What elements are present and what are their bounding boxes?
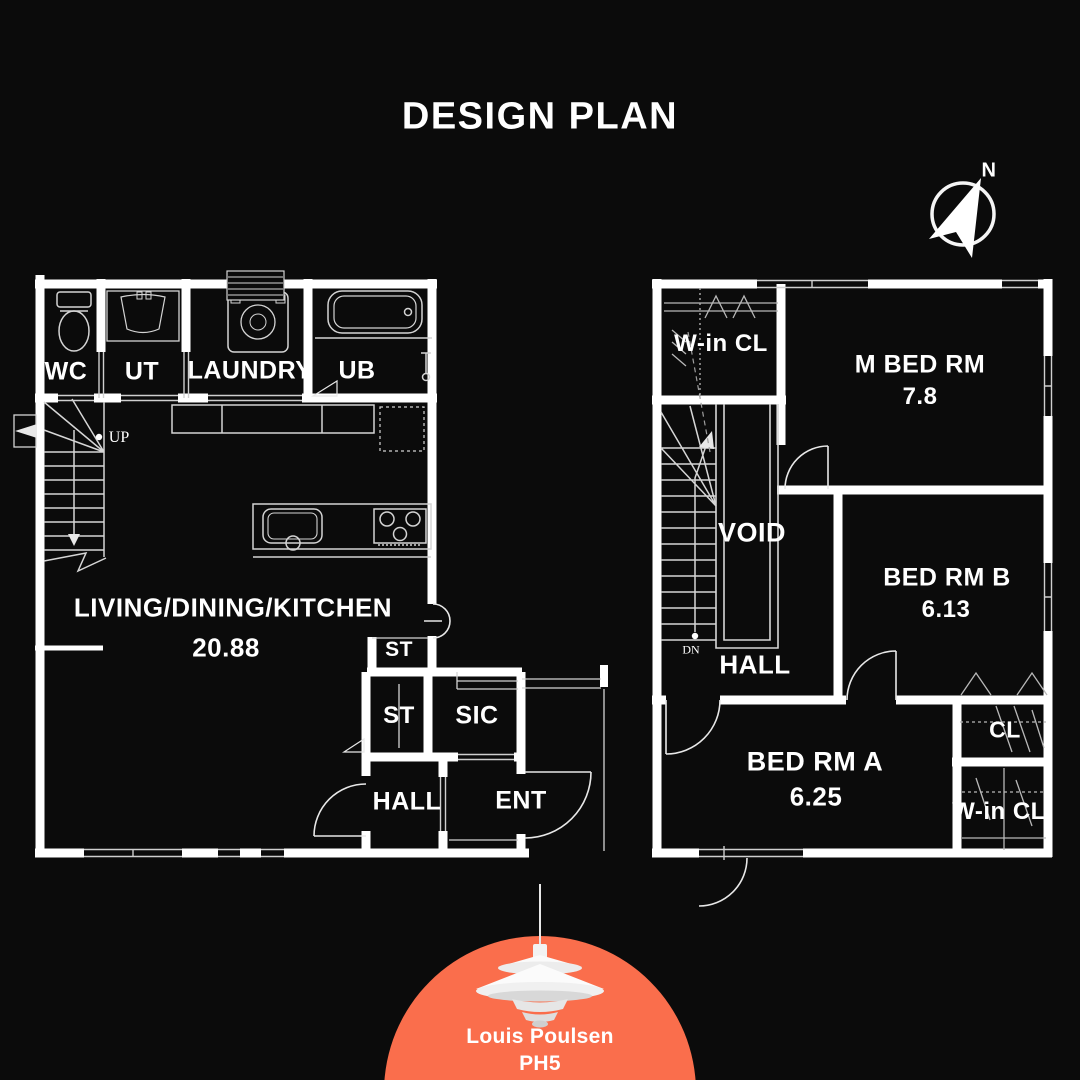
stairs-floor2 bbox=[661, 332, 716, 640]
room-label-hall2: HALL bbox=[719, 650, 790, 681]
kitchen-island-icon bbox=[253, 504, 431, 557]
room-area-ldk: 20.88 bbox=[192, 633, 260, 664]
room-area-bedrma: 6.25 bbox=[790, 782, 843, 813]
floorplan-svg bbox=[0, 0, 1080, 1080]
room-label-bedrmb: BED RM B bbox=[883, 564, 1011, 593]
brand-model: PH5 bbox=[519, 1052, 561, 1076]
poster-canvas: DESIGN PLAN N WC UT LAUNDRY UB LIVING/DI… bbox=[0, 0, 1080, 1080]
room-label-wincl-top: W-in CL bbox=[674, 330, 768, 358]
stair-label-up: UP bbox=[109, 429, 129, 447]
room-area-mbedrm: 7.8 bbox=[903, 383, 938, 411]
page-title: DESIGN PLAN bbox=[402, 96, 678, 139]
room-label-bedrma: BED RM A bbox=[747, 747, 884, 778]
room-label-void: VOID bbox=[718, 518, 786, 549]
porch-post bbox=[600, 665, 608, 687]
washer-icon bbox=[228, 292, 288, 352]
compass-icon bbox=[929, 178, 994, 258]
room-label-st-lower: ST bbox=[383, 702, 415, 730]
room-label-cl: CL bbox=[989, 717, 1021, 744]
room-label-hall1: HALL bbox=[373, 788, 442, 817]
louver-icon bbox=[227, 271, 284, 300]
stair-label-dn: DN bbox=[682, 643, 699, 658]
room-label-ub: UB bbox=[338, 357, 375, 386]
room-label-laundry: LAUNDRY bbox=[188, 357, 313, 386]
room-label-mbedrm: M BED RM bbox=[855, 351, 985, 380]
compass-north-label: N bbox=[982, 160, 997, 183]
room-area-bedrmb: 6.13 bbox=[922, 596, 971, 624]
room-label-wc: WC bbox=[45, 358, 88, 387]
room-label-ldk: LIVING/DINING/KITCHEN bbox=[74, 593, 392, 624]
vanity-sink-icon bbox=[107, 291, 179, 341]
room-label-ut: UT bbox=[125, 358, 159, 387]
room-label-ent: ENT bbox=[495, 787, 547, 816]
niche-icon bbox=[14, 415, 37, 447]
room-label-wincl-bottom: W-in CL bbox=[952, 798, 1046, 826]
room-label-st-upper: ST bbox=[385, 638, 413, 662]
kitchen-counter-icon bbox=[172, 405, 424, 451]
brand-name: Louis Poulsen bbox=[466, 1025, 613, 1049]
stairs-floor1 bbox=[44, 399, 106, 571]
room-label-sic: SIC bbox=[455, 702, 498, 731]
brand-badge bbox=[384, 884, 696, 1080]
toilet-icon bbox=[57, 292, 91, 351]
